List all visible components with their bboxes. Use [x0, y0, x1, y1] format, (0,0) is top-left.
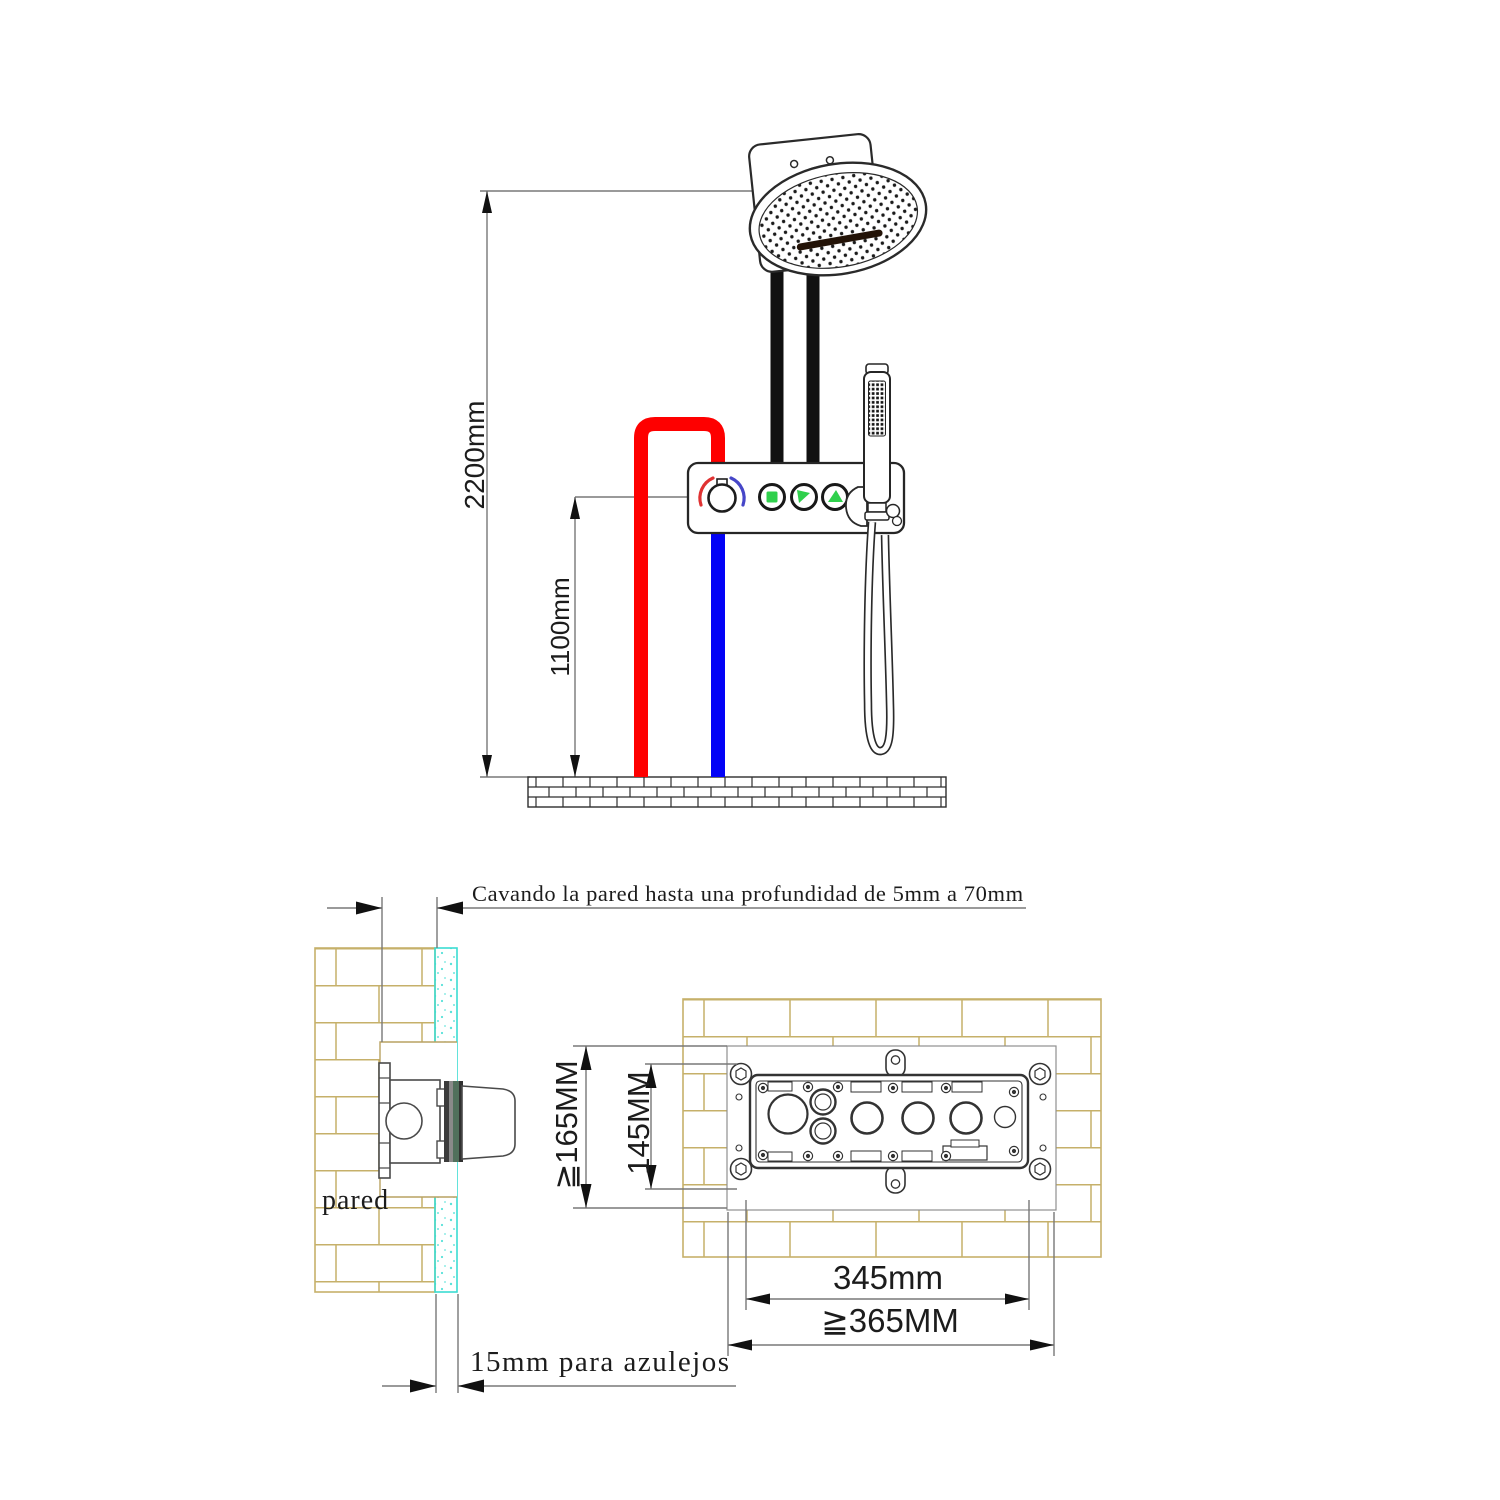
dim-label-165mm: ≧165MM — [549, 1060, 584, 1189]
arrow-down-icon — [482, 755, 492, 777]
seal-ring-dark — [444, 1081, 449, 1162]
outlet-port-2 — [903, 1103, 934, 1134]
tab-hole — [891, 1056, 899, 1064]
dim-label-1100mm: 1100mm — [545, 577, 575, 676]
arrow-up-icon — [482, 191, 492, 213]
ear-hole — [736, 1094, 742, 1100]
arrow-down-icon — [570, 755, 580, 777]
arrow-left-icon — [746, 1294, 770, 1305]
wall-label: pared — [322, 1185, 389, 1216]
hex-nut-icon — [1035, 1068, 1045, 1080]
tile-dimension-lines — [382, 1294, 736, 1393]
dim-label-145mm: 145MM — [621, 1071, 656, 1174]
outlet-port-3 — [951, 1103, 982, 1134]
holder-pivot-small — [893, 517, 902, 526]
outlet-port-plain — [995, 1107, 1016, 1128]
ear-hole — [1040, 1094, 1046, 1100]
port-boss — [902, 1151, 932, 1161]
arrow-right-icon — [356, 902, 382, 915]
arrow-left-icon — [728, 1340, 752, 1351]
check-valve-inner — [815, 1094, 831, 1110]
hex-nut-icon — [736, 1068, 746, 1080]
holder-pivot — [887, 505, 900, 518]
valve-port-circle — [386, 1103, 422, 1139]
dim-label-365mm: ≧365MM — [821, 1302, 959, 1339]
port-boss — [851, 1151, 881, 1161]
port-boss — [952, 1082, 982, 1092]
hose-nut — [865, 512, 889, 520]
note-tile-allowance: 15mm para azulejos — [470, 1346, 731, 1378]
port-boss — [902, 1082, 932, 1092]
temperature-knob — [709, 485, 736, 512]
rain-mode-icon — [767, 492, 778, 503]
thermostat-cartridge-port — [769, 1095, 808, 1134]
arrow-left-icon — [458, 1380, 484, 1393]
valve-spindle-nose — [462, 1086, 515, 1159]
dim-label-2200mm: 2200mm — [459, 401, 490, 510]
mount-screw-hole — [790, 160, 798, 168]
port-boss — [768, 1152, 792, 1161]
overhead-shower-head — [741, 133, 935, 289]
tab-hole — [891, 1180, 899, 1188]
dim-label-345mm: 345mm — [833, 1259, 943, 1296]
floor-brick-strip — [528, 777, 946, 807]
ear-hole — [1040, 1145, 1046, 1151]
shower-installation-diagram: 2200mm 1100mm — [0, 0, 1500, 1500]
mount-screw-hole — [826, 156, 834, 164]
arrow-right-icon — [1030, 1340, 1054, 1351]
front-elevation-view: 2200mm 1100mm — [459, 133, 946, 807]
diagram-canvas: 2200mm 1100mm — [0, 0, 1500, 1500]
outlet-port-1 — [852, 1103, 883, 1134]
hose-connector — [868, 503, 886, 512]
dimension-arrows-top — [482, 191, 580, 777]
port-boss — [768, 1082, 792, 1091]
arrow-left-icon — [437, 902, 463, 915]
arrow-right-icon — [1005, 1294, 1029, 1305]
note-wall-depth: Cavando la pared hasta una profundidad d… — [472, 881, 1024, 906]
hex-nut-icon — [736, 1163, 746, 1175]
outlet-foot-step — [951, 1140, 979, 1147]
hand-shower — [846, 364, 902, 751]
arrow-up-icon — [570, 497, 580, 519]
hex-nut-icon — [1035, 1163, 1045, 1175]
check-valve-inner — [815, 1123, 831, 1139]
wand-spray-face — [869, 381, 886, 436]
rough-in-box-view: ≧165MM 145MM 345mm ≧365MM — [549, 999, 1101, 1356]
port-boss — [851, 1082, 881, 1092]
seal-ring-green — [453, 1081, 459, 1162]
ear-hole — [736, 1145, 742, 1151]
seal-ring-gray — [449, 1081, 453, 1162]
arrow-right-icon — [410, 1380, 436, 1393]
